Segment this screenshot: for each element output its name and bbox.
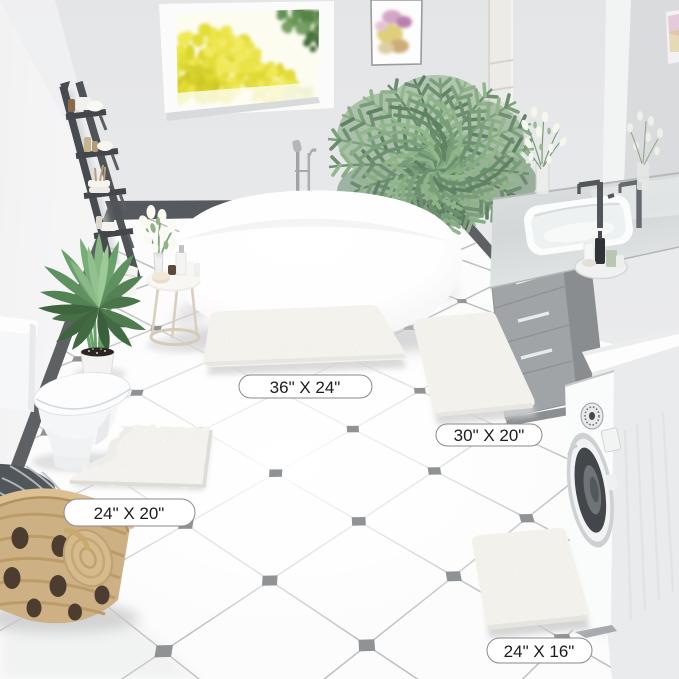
- svg-text:24" X 20": 24" X 20": [94, 504, 165, 523]
- svg-text:36" X 24": 36" X 24": [270, 378, 341, 397]
- svg-text:24" X 16": 24" X 16": [504, 642, 575, 661]
- svg-text:30" X 20": 30" X 20": [454, 426, 525, 445]
